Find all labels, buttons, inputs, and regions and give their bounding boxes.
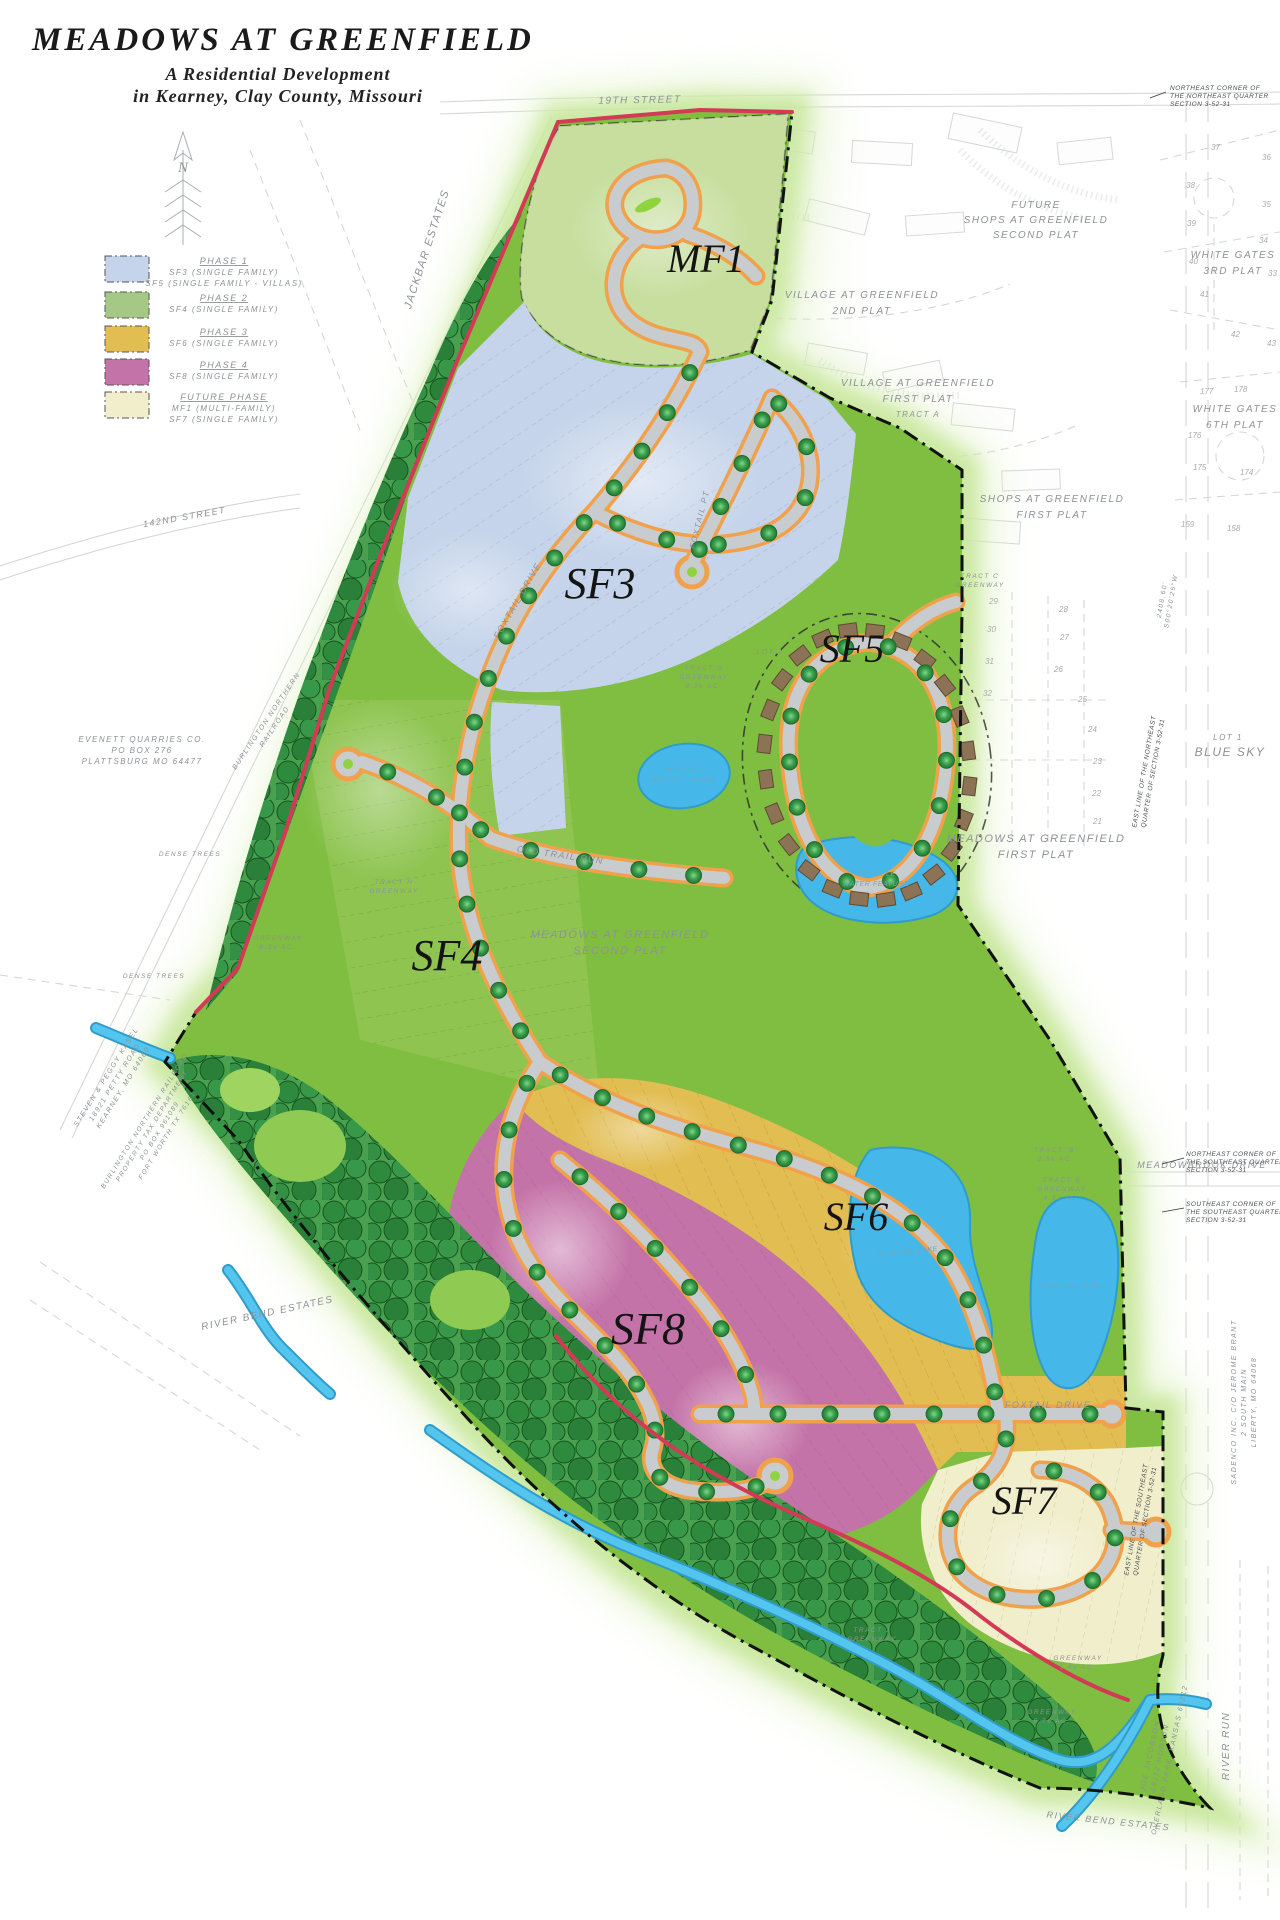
label-tract-g: GREENWAY <box>679 674 728 681</box>
street-tree-icon <box>686 867 702 883</box>
label-blue-sky-lot: LOT 1 <box>1213 733 1243 742</box>
label-tract-b2: TRACT 'B' <box>1034 1147 1078 1154</box>
culdesac-island <box>770 1471 780 1481</box>
street-tree-icon <box>801 666 817 682</box>
street-142nd: 142ND STREET <box>142 505 226 529</box>
label-possible-water-1: POSSIBLE <box>664 767 703 774</box>
street-tree-icon <box>513 1023 529 1039</box>
lot-number: 36 <box>1262 153 1271 162</box>
note-evenett: PO BOX 276 <box>111 746 172 755</box>
street-tree-icon <box>926 1406 942 1422</box>
street-tree-icon <box>931 798 947 814</box>
street-tree-icon <box>783 708 799 724</box>
street-tree-icon <box>797 490 813 506</box>
label-sf6: SF6 <box>824 1194 888 1239</box>
label-sf3: SF3 <box>565 559 636 608</box>
street-tree-icon <box>473 822 489 838</box>
label-greenway-83: GREENWAY <box>253 935 302 942</box>
lot-number: 21 <box>1092 817 1102 826</box>
note-dense-trees-2: DENSE TREES <box>123 973 185 980</box>
note-ne-se-corner: SECTION 3-52-31 <box>1186 1167 1247 1174</box>
label-sf5: SF5 <box>820 626 884 671</box>
label-greenway-57: 5.7± AC. <box>1033 1718 1070 1725</box>
legend-phase2-title: PHASE 2 <box>200 293 249 303</box>
legend-future-title: FUTURE PHASE <box>180 392 268 402</box>
label-greenway-14: 1.4± AC. <box>1059 1664 1096 1671</box>
note-se-se-corner: SOUTHEAST CORNER OF <box>1186 1201 1277 1208</box>
legend-swatch-phase1 <box>105 256 149 282</box>
lot-number: 27 <box>1059 633 1069 642</box>
street-tree-icon <box>611 1204 627 1220</box>
villa-building <box>960 741 975 761</box>
label-proposed-lake: PROPOSED LAKE <box>1038 1283 1105 1290</box>
lot-number: 177 <box>1200 387 1214 396</box>
label-shops-1st: SHOPS AT GREENFIELD <box>980 494 1125 505</box>
label-meadows-1st: FIRST PLAT <box>998 849 1075 861</box>
lot-number: 32 <box>983 689 992 698</box>
lot-number: 40 <box>1189 257 1198 266</box>
page-title: MEADOWS AT GREENFIELD <box>31 22 534 58</box>
street-tree-icon <box>989 1587 1005 1603</box>
lot-number: 37 <box>1211 143 1220 152</box>
legend: PHASE 1 SF3 (SINGLE FAMILY) SF5 (SINGLE … <box>105 256 303 424</box>
lot-number: 178 <box>1234 385 1248 394</box>
street-tree-icon <box>776 1151 792 1167</box>
street-tree-icon <box>754 412 770 428</box>
svg-text:2 SOUTH MAIN: 2 SOUTH MAIN <box>1241 1368 1248 1437</box>
lot-number: 175 <box>1193 463 1207 472</box>
label-village-2nd: VILLAGE AT GREENFIELD <box>785 290 939 301</box>
legend-phase3-title: PHASE 3 <box>200 327 249 337</box>
street-tree-icon <box>682 1279 698 1295</box>
street-tree-icon <box>904 1215 920 1231</box>
street-tree-icon <box>647 1240 663 1256</box>
lot-number: 39 <box>1187 219 1196 228</box>
label-tract-g: TRACT G <box>684 665 723 672</box>
lot-number: 33 <box>1268 269 1277 278</box>
street-tree-icon <box>914 840 930 856</box>
street-tree-icon <box>466 714 482 730</box>
label-sf8: SF8 <box>611 1303 685 1354</box>
street-tree-icon <box>978 1406 994 1422</box>
street-tree-icon <box>937 1250 953 1266</box>
street-tree-icon <box>738 1367 754 1383</box>
lot-number: 158 <box>1227 524 1241 533</box>
street-tree-icon <box>480 670 496 686</box>
street-foxtail-se: FOXTAIL DRIVE <box>1005 1400 1091 1410</box>
street-tree-icon <box>822 1406 838 1422</box>
legend-phase3-line1: SF6 (SINGLE FAMILY) <box>169 339 279 348</box>
lot-number: 22 <box>1091 789 1101 798</box>
label-future-shops: FUTURE <box>1011 200 1061 211</box>
street-tree-icon <box>629 1376 645 1392</box>
street-tree-icon <box>942 1511 958 1527</box>
note-evenett: EVENETT QUARRIES CO. <box>78 735 205 744</box>
label-river-run: RIVER RUN <box>1221 1712 1232 1781</box>
label-tract-j: TRACT J <box>853 1627 890 1634</box>
label-village-1st: VILLAGE AT GREENFIELD <box>841 378 995 389</box>
legend-phase4-line1: SF8 (SINGLE FAMILY) <box>169 372 279 381</box>
label-white-gates-3rd: 3RD PLAT <box>1203 266 1262 277</box>
street-tree-icon <box>939 752 955 768</box>
label-tract-b: 4.3± AC. <box>1043 1195 1080 1202</box>
street-tree-icon <box>631 862 647 878</box>
lot-number: 24 <box>1087 725 1097 734</box>
street-tree-icon <box>734 455 750 471</box>
greenway-clearing <box>430 1270 510 1330</box>
lot-number: 25 <box>1077 695 1087 704</box>
site-plan-sheet: MEADOWS AT GREENFIELD A Residential Deve… <box>0 0 1280 1920</box>
white-gates-lot-lines <box>1160 130 1280 500</box>
street-19th: 19TH STREET <box>598 94 681 106</box>
label-blue-sky: BLUE SKY <box>1195 745 1266 759</box>
lot-number: 26 <box>1053 665 1063 674</box>
street-tree-icon <box>782 754 798 770</box>
label-meadows-2nd: MEADOWS AT GREENFIELD <box>531 929 710 941</box>
label-shops-1st: FIRST PLAT <box>1017 510 1088 521</box>
note-ne-se-corner: THE SOUTHEAST QUARTER <box>1186 1159 1280 1166</box>
north-arrow-icon: N <box>165 132 201 245</box>
culdesac-island <box>687 567 697 577</box>
legend-swatch-phase4 <box>105 359 149 385</box>
street-tree-icon <box>771 396 787 412</box>
north-label: N <box>177 160 189 176</box>
label-tract-b2: 0.5± AC. <box>1037 1156 1074 1163</box>
lot-number: 174 <box>1240 468 1254 477</box>
street-tree-icon <box>718 1406 734 1422</box>
street-tree-icon <box>699 1484 715 1500</box>
culdesac-island <box>343 759 353 769</box>
note-ne-corner: SECTION 3-52-31 <box>1170 101 1231 108</box>
street-tree-icon <box>457 759 473 775</box>
street-tree-icon <box>998 1431 1014 1447</box>
label-tract-g: 9.2± AC. <box>685 683 722 690</box>
subtitle-1: A Residential Development <box>165 64 391 84</box>
street-tree-icon <box>1046 1463 1062 1479</box>
lot-number: 30 <box>987 625 996 634</box>
label-possible-water-1: WATER FEATURE <box>651 777 718 784</box>
street-tree-icon <box>529 1264 545 1280</box>
villa-building <box>758 769 773 789</box>
label-sf4: SF4 <box>412 931 483 980</box>
label-sf7: SF7 <box>992 1478 1058 1523</box>
label-meadows-1st: MEADOWS AT GREENFIELD <box>947 833 1126 845</box>
villa-building <box>962 776 977 795</box>
greenway-clearing <box>254 1110 346 1182</box>
street-tree-icon <box>428 789 444 805</box>
leader-line <box>1162 1208 1184 1212</box>
lot-number: 43 <box>1267 339 1276 348</box>
label-tract-j: GREENWAY <box>847 1636 896 1643</box>
street-tree-icon <box>1090 1484 1106 1500</box>
lot-number: 176 <box>1188 431 1202 440</box>
lot-number: 31 <box>985 657 994 666</box>
label-future-shops: SECOND PLAT <box>993 230 1079 241</box>
street-tree-icon <box>634 443 650 459</box>
note-ne-se-corner: NORTHEAST CORNER OF <box>1186 1151 1277 1158</box>
legend-phase1-line1: SF3 (SINGLE FAMILY) <box>169 268 279 277</box>
street-tree-icon <box>659 532 675 548</box>
street-tree-icon <box>576 515 592 531</box>
street-tree-icon <box>976 1337 992 1353</box>
label-white-gates-6th: WHITE GATES <box>1193 404 1278 415</box>
street-tree-icon <box>874 1406 890 1422</box>
street-tree-icon <box>682 365 698 381</box>
label-village-1st-tract-a: TRACT A <box>896 410 940 419</box>
legend-phase1-title: PHASE 1 <box>200 256 249 266</box>
street-tree-icon <box>1107 1530 1123 1546</box>
label-jackbar-estates: JACKBAR ESTATES <box>402 188 452 311</box>
street-tree-icon <box>505 1220 521 1236</box>
greenway-clearing <box>220 1068 280 1112</box>
legend-phase2-line1: SF4 (SINGLE FAMILY) <box>169 305 279 314</box>
legend-future-line2: SF7 (SINGLE FAMILY) <box>169 415 279 424</box>
label-greenway-83: 8.3± AC. <box>259 944 296 951</box>
label-tract-b: GREENWAY <box>1037 1186 1086 1193</box>
street-tree-icon <box>639 1108 655 1124</box>
note-se-se-corner: SECTION 3-52-31 <box>1186 1217 1247 1224</box>
label-tract-c: TRACT C <box>961 573 1000 580</box>
street-tree-icon <box>917 665 933 681</box>
street-tree-icon <box>713 1321 729 1337</box>
street-tree-icon <box>659 405 675 421</box>
street-tree-icon <box>496 1172 512 1188</box>
legend-swatch-phase3 <box>105 326 149 352</box>
legend-phase4-title: PHASE 4 <box>200 360 249 370</box>
label-village-1st: FIRST PLAT <box>883 394 954 405</box>
site-plan-map: MEADOWS AT GREENFIELD A Residential Deve… <box>0 0 1280 1920</box>
legend-future-line1: MF1 (MULTI-FAMILY) <box>172 404 276 413</box>
street-tree-icon <box>451 805 467 821</box>
street-tree-icon <box>552 1067 568 1083</box>
label-greenway-14: GREENWAY <box>1053 1655 1102 1662</box>
street-tree-icon <box>610 515 626 531</box>
street-tree-icon <box>572 1169 588 1185</box>
street-tree-icon <box>380 764 396 780</box>
river-bend-lot-lines <box>30 1262 300 1450</box>
street-tree-icon <box>799 439 815 455</box>
note-evenett: PLATTSBURG MO 64477 <box>82 757 203 766</box>
street-tree-icon <box>519 1075 535 1091</box>
street-tree-icon <box>987 1384 1003 1400</box>
note-bearing: 2408.60' S00°20'25"W <box>1154 572 1179 629</box>
note-ne-corner: THE NORTHEAST QUARTER <box>1170 93 1269 100</box>
legend-swatch-future <box>105 392 149 418</box>
lot-number: 28 <box>1058 605 1068 614</box>
street-142nd-line <box>0 494 300 580</box>
label-greenway-57: GREENWAY <box>1027 1709 1076 1716</box>
note-sadenco: SADENCO INC. C/O JEROME BRANT 2 SOUTH MA… <box>1231 1319 1258 1484</box>
street-tree-icon <box>491 982 507 998</box>
label-mf1: MF1 <box>666 236 745 281</box>
lot-number: 29 <box>988 597 998 606</box>
label-possible-water-2: POSSIBLE <box>856 871 895 878</box>
street-tree-icon <box>652 1469 668 1485</box>
street-tree-icon <box>770 1406 786 1422</box>
label-tract-h: TRACT H <box>375 879 414 886</box>
lot-number: 159 <box>1181 520 1195 529</box>
street-tree-icon <box>452 851 468 867</box>
label-white-gates-6th: 6TH PLAT <box>1206 420 1264 431</box>
street-tree-icon <box>459 896 475 912</box>
street-tree-icon <box>949 1559 965 1575</box>
label-tract-b: TRACT B <box>1043 1177 1081 1184</box>
label-village-2nd: 2ND PLAT <box>831 306 891 317</box>
legend-phase1-line2: SF5 (SINGLE FAMILY - VILLAS) <box>145 279 302 288</box>
area-sf3-south-lotlines <box>490 702 566 836</box>
lot-number: 42 <box>1231 330 1240 339</box>
label-lot1-sf5: LOT 1 <box>757 649 784 656</box>
lot-number: 35 <box>1262 200 1271 209</box>
street-tree-icon <box>595 1090 611 1106</box>
label-possible-water-2: WATER FEATURE <box>843 881 910 888</box>
street-tree-icon <box>730 1137 746 1153</box>
lot-number: 38 <box>1186 181 1195 190</box>
street-tree-icon <box>710 536 726 552</box>
white-gates-culdesac <box>1194 178 1234 218</box>
label-white-gates-3rd: WHITE GATES <box>1191 250 1276 261</box>
lot-number: 23 <box>1092 757 1102 766</box>
street-tree-icon <box>1039 1590 1055 1606</box>
label-tract-c: GREENWAY <box>955 582 1004 589</box>
subtitle-2: in Kearney, Clay County, Missouri <box>133 86 423 106</box>
villa-building <box>849 891 868 906</box>
lot-number: 41 <box>1200 290 1209 299</box>
note-se-se-corner: THE SOUTHEAST QUARTER <box>1186 1209 1280 1216</box>
street-tree-icon <box>974 1473 990 1489</box>
svg-text:LIBERTY, MO 64068: LIBERTY, MO 64068 <box>1251 1357 1258 1447</box>
label-future-shops: SHOPS AT GREENFIELD <box>964 215 1109 226</box>
lot-number: 34 <box>1259 236 1268 245</box>
note-east-line-ne: EAST LINE OF THE NORTHEAST QUARTER OF SE… <box>1131 715 1167 830</box>
street-tree-icon <box>501 1122 517 1138</box>
street-tree-icon <box>761 525 777 541</box>
svg-text:SADENCO INC. C/O JEROME BRANT: SADENCO INC. C/O JEROME BRANT <box>1231 1319 1238 1484</box>
street-tree-icon <box>936 707 952 723</box>
street-tree-icon <box>547 550 563 566</box>
street-tree-icon <box>789 799 805 815</box>
legend-swatch-phase2 <box>105 292 149 318</box>
street-tree-icon <box>606 480 622 496</box>
note-dense-trees-1: DENSE TREES <box>159 851 221 858</box>
villa-building <box>757 734 772 753</box>
label-meadows-2nd: SECOND PLAT <box>573 945 666 957</box>
street-tree-icon <box>713 499 729 515</box>
street-tree-icon <box>684 1124 700 1140</box>
title-block: MEADOWS AT GREENFIELD A Residential Deve… <box>31 22 534 106</box>
street-tree-icon <box>821 1167 837 1183</box>
street-tree-icon <box>807 842 823 858</box>
street-tree-icon <box>562 1302 578 1318</box>
note-ne-corner: NORTHEAST CORNER OF <box>1170 85 1261 92</box>
street-tree-icon <box>1085 1573 1101 1589</box>
label-tract-h: GREENWAY <box>369 888 418 895</box>
street-tree-icon <box>960 1292 976 1308</box>
villa-building <box>876 892 896 907</box>
